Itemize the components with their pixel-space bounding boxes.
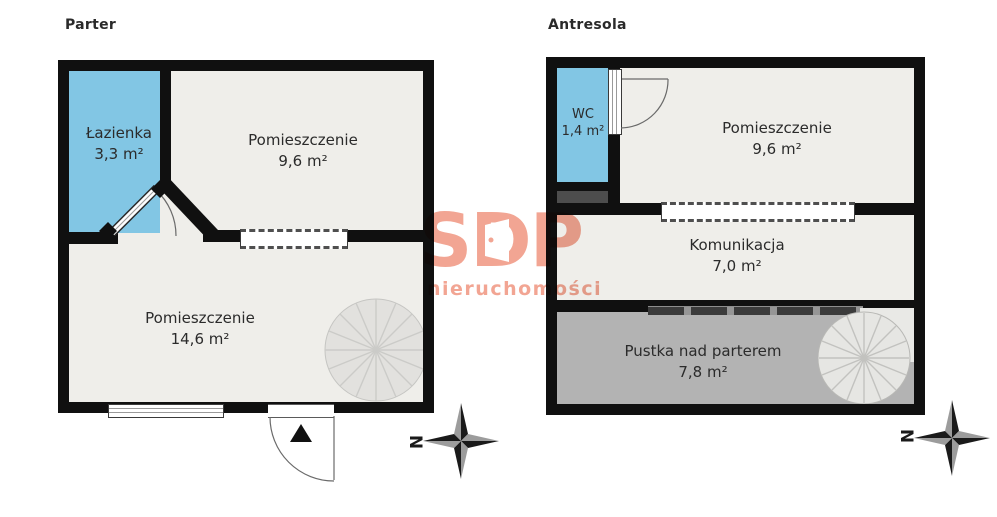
compass-north-label: N — [896, 429, 916, 443]
room-label-lazienka: Łazienka 3,3 m² — [59, 123, 179, 165]
room-label-pomieszczenie-96-antresola: Pomieszczenie 9,6 m² — [707, 118, 847, 160]
watermark-tagline: nieruchomości — [427, 280, 602, 299]
room-label-pomieszczenie-146: Pomieszczenie 14,6 m² — [130, 308, 270, 350]
room-area: 14,6 m² — [130, 329, 270, 350]
door-leaf-line — [112, 188, 157, 233]
room-area: 9,6 m² — [233, 151, 373, 172]
room-area: 3,3 m² — [59, 144, 179, 165]
entrance-door — [270, 416, 334, 481]
room-label-pustka: Pustka nad parterem 7,8 m² — [613, 341, 793, 383]
stair-treads — [819, 313, 909, 403]
compass-north-label: N — [405, 435, 425, 449]
room-name: Komunikacja — [667, 235, 807, 256]
room-area: 7,0 m² — [667, 256, 807, 277]
spiral-staircase-antresola — [818, 308, 914, 404]
room-name: Łazienka — [59, 123, 179, 144]
room-label-pomieszczenie-96-parter: Pomieszczenie 9,6 m² — [233, 130, 373, 172]
floorplan-image: Parter Antresola — [0, 0, 997, 517]
spiral-staircase-parter — [325, 299, 427, 401]
watermark-brand: SDP — [419, 204, 582, 278]
wc-door — [621, 79, 668, 128]
room-name: WC — [553, 106, 613, 123]
diagonal-wall — [164, 183, 215, 237]
compass-rose-antresola — [914, 400, 990, 476]
compass-rose-parter — [423, 403, 499, 479]
room-label-wc: WC 1,4 m² — [553, 106, 613, 140]
room-name: Pustka nad parterem — [613, 341, 793, 362]
room-area: 1,4 m² — [553, 123, 613, 140]
room-area: 9,6 m² — [707, 139, 847, 160]
room-name: Pomieszczenie — [130, 308, 270, 329]
room-label-komunikacja: Komunikacja 7,0 m² — [667, 235, 807, 277]
door-swing-arc — [621, 79, 668, 128]
room-area: 7,8 m² — [613, 362, 793, 383]
entrance-arrow-icon — [290, 424, 312, 442]
bathroom-door — [99, 180, 176, 240]
compass-star-icon — [423, 403, 499, 479]
room-name: Pomieszczenie — [707, 118, 847, 139]
room-name: Pomieszczenie — [233, 130, 373, 151]
compass-star-icon — [914, 400, 990, 476]
stair-treads — [325, 299, 427, 401]
